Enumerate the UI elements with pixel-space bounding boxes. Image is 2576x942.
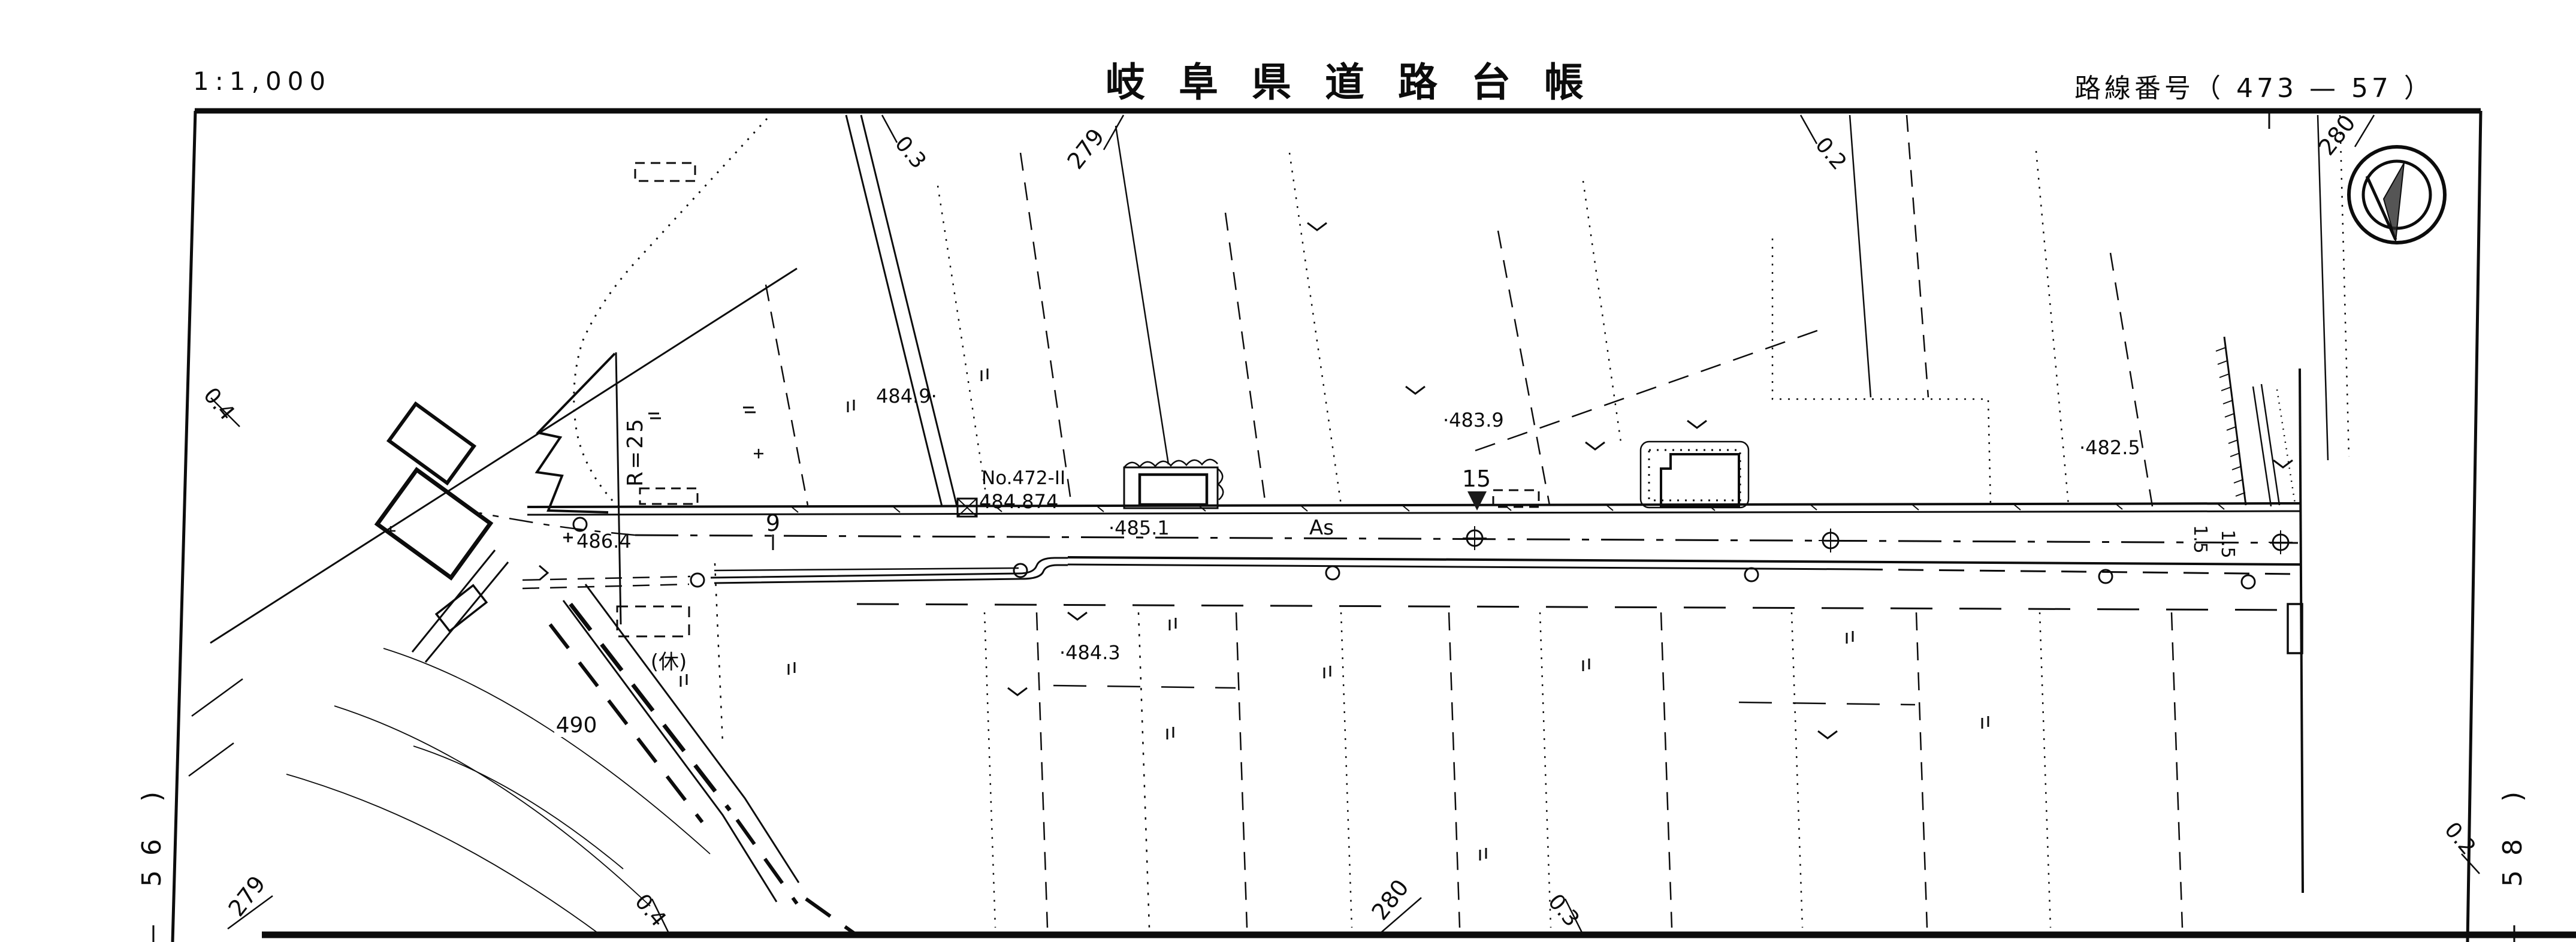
road-width-a: 1.5: [2190, 525, 2210, 554]
curve-radius: R=25: [623, 416, 648, 487]
elevation-4825: ·482.5: [2079, 436, 2140, 459]
grid-label: 0.2: [2439, 817, 2480, 859]
elevation-4849: 484.9·: [876, 385, 937, 407]
route-number: 路線番号（ 473 — 57 ）: [2074, 73, 2434, 104]
elevation-4843: ·484.3: [1059, 641, 1121, 664]
map-scale: 1:1,000: [193, 67, 331, 96]
grid-label: 0.3: [890, 131, 931, 173]
header: 1:1,000 岐阜県道路台帳 路線番号（ 473 — 57 ）: [193, 59, 2434, 105]
road-width-b: 1.5: [2217, 530, 2238, 558]
lower-boundary: [857, 604, 2299, 610]
adjacent-sheet-right: — 58 ): [2498, 777, 2528, 942]
surface-type: As: [1309, 516, 1334, 540]
map-frame: [173, 111, 2576, 942]
grid-label: 0.4: [198, 383, 239, 425]
grid-label: 0.2: [1810, 132, 1851, 174]
main-road: ·485.1 As 9 15 1.5 1.5 No.472-II 484.874: [527, 369, 2303, 893]
adjacent-sheet-left: — 56 ): [137, 777, 167, 942]
lower-parcels: [985, 612, 2182, 928]
benchmark-elevation: 484.874: [979, 490, 1058, 513]
fallow-field-label: (休): [651, 650, 687, 674]
intersection: R=25 486.4: [479, 119, 1019, 624]
road-ledger-map: 1:1,000 岐阜県道路台帳 路線番号（ 473 — 57 ）: [0, 0, 2576, 942]
elevation-4864: 486.4: [576, 530, 632, 552]
grid-label: 280: [1366, 874, 1414, 925]
grid-label: 279: [223, 871, 270, 921]
benchmark-number: No.472-II: [982, 467, 1065, 489]
station-15: 15: [1462, 466, 1491, 492]
map-labels: 484.9· ·483.9 ·482.5 ·484.3: [876, 385, 2140, 664]
pole-icons: [573, 518, 2255, 588]
buildings: [378, 163, 2302, 653]
grid-label: 280: [2313, 110, 2360, 160]
contour-label-490: 490: [556, 713, 597, 738]
field-symbols: [648, 223, 2293, 861]
road-elevation: ·485.1: [1109, 517, 1170, 539]
station-9: 9: [766, 510, 780, 536]
elevation-4839: ·483.9: [1443, 409, 1504, 431]
lower-left-terrain: 490 (休): [189, 449, 858, 936]
north-arrow-icon: [2349, 147, 2445, 243]
grid-label: 279: [1062, 123, 1109, 174]
station-15-marker: [1467, 491, 1487, 511]
page-title: 岐阜県道路台帳: [1106, 59, 1617, 105]
